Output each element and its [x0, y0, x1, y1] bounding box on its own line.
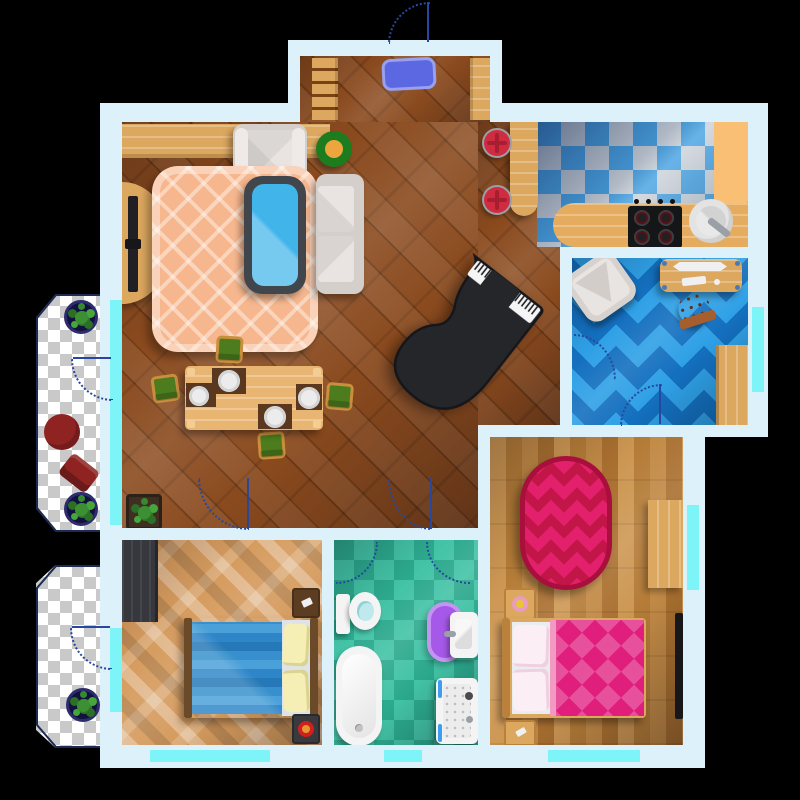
- toilet-water: [357, 601, 374, 621]
- wall-kitchen-top: [490, 103, 768, 122]
- coffee-table-glass: [252, 184, 298, 286]
- sink-faucet: [444, 631, 456, 637]
- shower-trim: [438, 680, 442, 698]
- plate: [298, 387, 320, 409]
- door-line-bedroom-small: [247, 478, 249, 528]
- sofa-cushion: [318, 186, 354, 232]
- wall-bedroom-large-top: [478, 425, 768, 437]
- bed-pillow: [512, 624, 549, 667]
- chair-back: [327, 400, 351, 409]
- shower-handle: [466, 716, 473, 723]
- bar-stool: [484, 130, 510, 156]
- desk-monitor: [673, 262, 727, 271]
- balcony-plant-pot: [64, 492, 98, 526]
- wall-office-left: [560, 247, 572, 437]
- window-bottom-bedroom-small: [150, 750, 270, 762]
- plant-pot-center: [325, 140, 343, 158]
- desk-bolt: [735, 261, 740, 266]
- sink-basin: [455, 619, 472, 649]
- floor-plan: [0, 0, 800, 800]
- desk-bolt: [735, 285, 740, 290]
- bathtub-drain: [355, 724, 363, 732]
- nightstand-lamp: [292, 714, 320, 744]
- shower-trim: [438, 724, 442, 742]
- tv-mount: [125, 239, 141, 249]
- bar-counter: [510, 122, 538, 216]
- door-arc-entrance: [388, 2, 430, 44]
- door-mat: [381, 57, 437, 92]
- balcony-plant-pot: [66, 688, 100, 722]
- window-right-office: [752, 307, 764, 392]
- desk-bolt: [662, 285, 667, 290]
- window-left-large: [110, 300, 122, 525]
- desk-mouse: [714, 279, 720, 285]
- bathtub: [336, 646, 382, 746]
- bed-footboard: [184, 618, 192, 718]
- floor-plant-pot: [126, 494, 162, 530]
- stove-burner: [634, 229, 650, 245]
- wall-bathroom-left: [322, 528, 334, 768]
- toilet-bowl: [349, 592, 381, 630]
- stove-knob: [658, 199, 663, 204]
- lamp-bulb: [302, 725, 310, 733]
- toilet: [336, 592, 382, 636]
- stove-burner: [634, 210, 650, 226]
- chair-back: [155, 391, 179, 401]
- armchair-fold: [575, 261, 627, 312]
- coat-rack: [312, 58, 338, 120]
- table-corner: [187, 368, 195, 376]
- wall-kitchen-office: [560, 247, 768, 258]
- stove-knob: [634, 199, 639, 204]
- window-bottom-bedroom-large: [548, 750, 640, 762]
- wardrobe: [122, 540, 158, 622]
- wall-bathroom-right: [478, 425, 490, 768]
- chair-seat: [150, 373, 180, 403]
- table-corner: [313, 420, 321, 428]
- chair-back: [260, 449, 283, 458]
- stove-knob: [646, 199, 651, 204]
- plate: [218, 370, 240, 392]
- wall-top-left: [100, 103, 300, 122]
- kitchen-sink: [689, 199, 733, 243]
- dining-chair: [215, 335, 243, 363]
- dresser: [648, 500, 683, 588]
- nightstand-lamp: [504, 588, 536, 620]
- dining-chair: [150, 373, 180, 403]
- wall-tv: [675, 613, 683, 719]
- balcony-round-table: [44, 414, 80, 450]
- desk-bolt: [662, 261, 667, 266]
- bed-headboard: [502, 618, 510, 718]
- stove-burner: [658, 229, 674, 245]
- bed-blanket: [192, 622, 282, 714]
- bed-blanket: [556, 620, 644, 716]
- balcony-plant-pot: [64, 300, 98, 334]
- door-line-office-bottom: [659, 384, 661, 424]
- bath-sink: [450, 612, 478, 658]
- window-bottom-bathroom: [384, 750, 422, 762]
- bed: [184, 618, 318, 718]
- bed-headboard: [310, 618, 318, 718]
- shower: [436, 678, 478, 744]
- chair-back: [217, 353, 240, 361]
- desk-keyboard: [682, 276, 707, 286]
- window-right-bedroom-large: [687, 505, 699, 590]
- chair-seat: [215, 335, 243, 363]
- stool-bar-v: [495, 133, 499, 153]
- chair-seat: [257, 431, 286, 460]
- stool-bar-v: [495, 190, 499, 210]
- lamp-bulb: [516, 600, 524, 608]
- phone: [301, 597, 313, 608]
- door-line-entrance: [427, 2, 429, 42]
- potted-plant: [316, 131, 352, 167]
- chair-seat: [325, 382, 354, 411]
- stove: [628, 206, 682, 248]
- door-line-balcony-small: [72, 626, 110, 628]
- coffee-table: [244, 176, 306, 294]
- phone: [515, 727, 527, 737]
- door-line-bathroom-hall: [430, 478, 432, 528]
- kitchen-counter-column: [714, 122, 748, 205]
- dining-chair: [325, 382, 354, 411]
- table-corner: [313, 368, 321, 376]
- office-desk: [660, 259, 742, 292]
- nightstand-phone: [292, 588, 320, 618]
- stove-knob: [670, 199, 675, 204]
- stove-burner: [658, 210, 674, 226]
- double-bed: [502, 618, 646, 718]
- plant-leaves: [138, 506, 151, 519]
- wall-bedroom-large-right: [683, 425, 705, 768]
- bed-pillow: [282, 623, 310, 666]
- dining-table: [185, 366, 323, 430]
- plant-leaves: [75, 311, 88, 324]
- bed-pillow: [512, 668, 549, 711]
- table-corner: [187, 420, 195, 428]
- plant-leaves: [75, 503, 88, 516]
- wall-entry-left: [288, 40, 300, 122]
- plate: [264, 406, 286, 428]
- oval-rug: [520, 456, 612, 590]
- sofa: [316, 174, 364, 294]
- shoe-shelf: [470, 58, 490, 120]
- door-line-balcony-large: [73, 357, 111, 359]
- toilet-tank: [336, 594, 350, 634]
- nightstand-phone: [504, 720, 536, 746]
- sofa-cushion: [318, 236, 354, 282]
- bed-pillow: [282, 669, 310, 712]
- shower-drain-knob: [465, 692, 473, 700]
- plate: [189, 386, 209, 406]
- tv: [128, 196, 138, 292]
- plant-leaves: [77, 699, 90, 712]
- office-closet: [716, 345, 748, 425]
- dining-chair: [257, 431, 286, 460]
- wall-entry-right: [490, 40, 502, 103]
- bar-stool: [484, 187, 510, 213]
